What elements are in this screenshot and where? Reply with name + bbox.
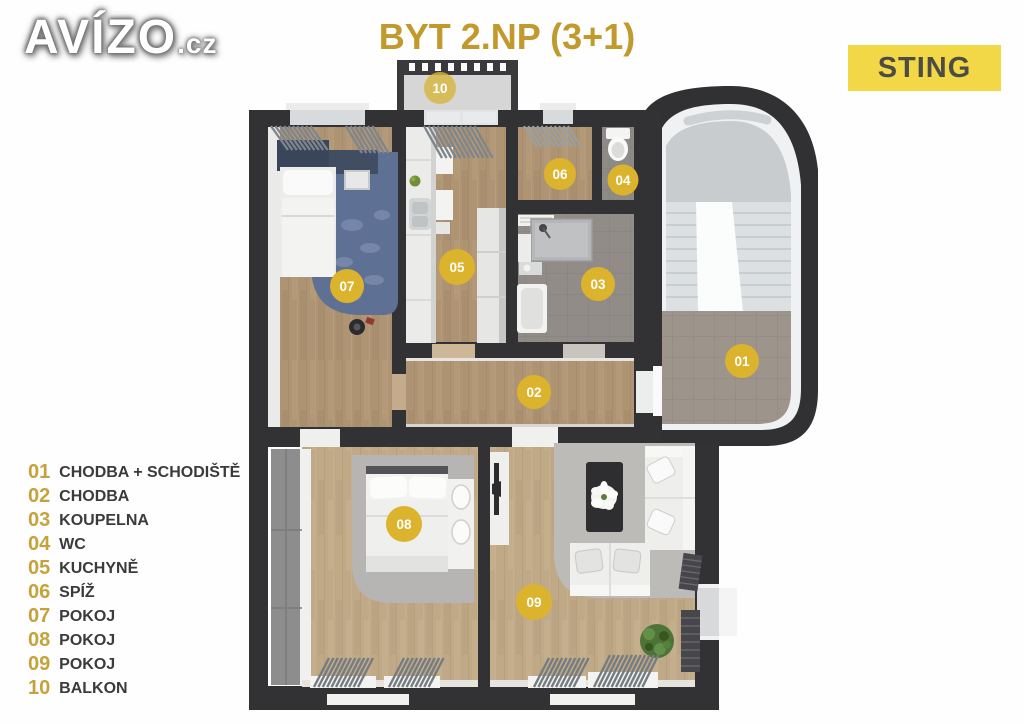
svg-text:07: 07 <box>339 279 354 294</box>
svg-text:09: 09 <box>526 595 541 610</box>
svg-text:08: 08 <box>396 517 412 532</box>
svg-text:03: 03 <box>590 277 606 292</box>
svg-text:06: 06 <box>552 167 568 182</box>
svg-text:10: 10 <box>432 81 447 96</box>
svg-text:02: 02 <box>526 385 541 400</box>
svg-text:04: 04 <box>615 173 631 188</box>
svg-text:01: 01 <box>734 354 750 369</box>
svg-text:05: 05 <box>449 260 465 275</box>
